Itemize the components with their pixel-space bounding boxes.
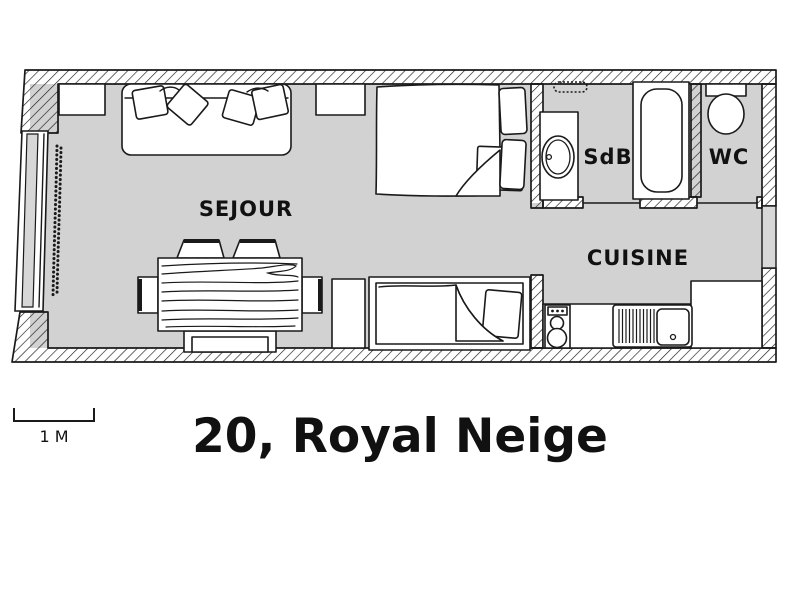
- wall-right-lower: [762, 268, 776, 348]
- sofa: [122, 83, 291, 155]
- wc-furniture: [706, 84, 746, 134]
- cuisine-label: CUISINE: [587, 246, 689, 270]
- page-title: 20, Royal Neige: [192, 409, 608, 464]
- sdb-label: SdB: [583, 145, 632, 169]
- kitchen-corner-counter: [691, 281, 762, 348]
- double-bed: [376, 84, 527, 196]
- sejour-cuisine-opening: [531, 203, 543, 275]
- wall-shelf-left: [59, 84, 105, 115]
- wc-label: WC: [709, 145, 750, 169]
- burner-icon: [551, 317, 564, 330]
- wall-sdb-cuisine-right: [757, 197, 762, 208]
- bathtub-icon: [641, 89, 682, 192]
- scale-bar: 1 M: [14, 408, 94, 446]
- cushion-icon: [251, 84, 289, 120]
- wall-right-upper: [762, 84, 776, 206]
- stove-knob: [556, 310, 559, 313]
- wall-sdb-wc: [691, 84, 701, 197]
- pillow-icon: [500, 139, 527, 189]
- table-top: [158, 258, 302, 331]
- floor-plan-drawing: SEJOUR SdB WC CUISINE 1 M 20, Royal Neig…: [0, 0, 800, 599]
- stove: [545, 305, 570, 348]
- single-bed: [332, 277, 530, 350]
- kitchen-sink-unit: [613, 305, 692, 347]
- kitchen-window: [762, 206, 776, 268]
- burner-icon: [548, 329, 567, 348]
- sejour-label: SEJOUR: [199, 197, 293, 221]
- floor-plan-page: SEJOUR SdB WC CUISINE 1 M 20, Royal Neig…: [0, 0, 800, 599]
- toilet-icon: [708, 94, 744, 134]
- stove-knob: [551, 310, 554, 313]
- scale-bar-bracket: [14, 408, 94, 421]
- pillow-icon: [499, 87, 527, 134]
- bedside-table: [332, 279, 365, 348]
- stove-knob: [561, 310, 564, 313]
- cushion-icon: [132, 85, 169, 119]
- chair-seat: [192, 337, 268, 352]
- scale-bar-label: 1 M: [39, 427, 68, 446]
- wall-sejour-cuisine: [531, 275, 543, 348]
- wall-shelf-mid: [316, 84, 365, 115]
